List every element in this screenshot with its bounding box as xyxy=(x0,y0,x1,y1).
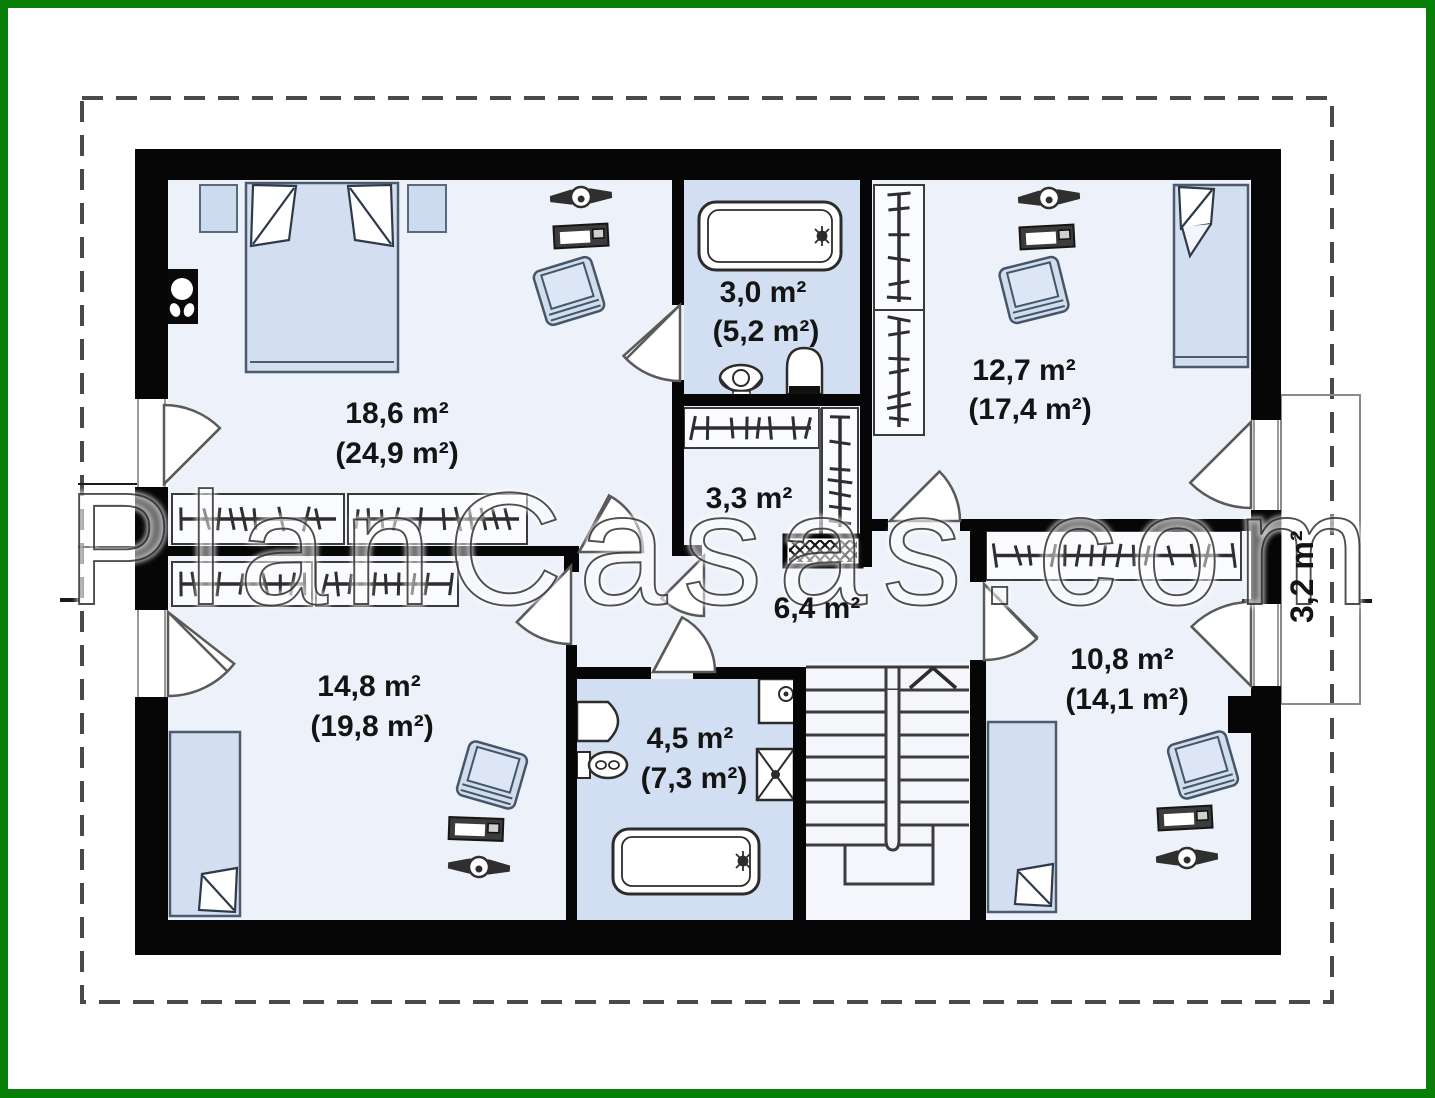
svg-text:3,2 m²: 3,2 m² xyxy=(1284,531,1320,623)
svg-text:6,4 m²: 6,4 m² xyxy=(774,592,861,625)
svg-text:3,0 m²: 3,0 m² xyxy=(720,276,807,309)
svg-text:(19,8 m²): (19,8 m²) xyxy=(310,710,433,743)
svg-text:12,7 m²: 12,7 m² xyxy=(972,354,1075,387)
svg-text:(5,2 m²): (5,2 m²) xyxy=(713,315,820,348)
svg-text:10,8 m²: 10,8 m² xyxy=(1070,643,1173,676)
svg-text:4,5 m²: 4,5 m² xyxy=(647,722,734,755)
svg-text:(24,9 m²): (24,9 m²) xyxy=(335,437,458,470)
svg-text:18,6 m²: 18,6 m² xyxy=(345,397,448,430)
svg-text:14,8 m²: 14,8 m² xyxy=(317,670,420,703)
svg-text:(7,3 m²): (7,3 m²) xyxy=(641,762,748,795)
svg-text:(17,4 m²): (17,4 m²) xyxy=(968,393,1091,426)
svg-text:3,3 m²: 3,3 m² xyxy=(706,482,793,515)
svg-text:(14,1 m²): (14,1 m²) xyxy=(1065,683,1188,716)
